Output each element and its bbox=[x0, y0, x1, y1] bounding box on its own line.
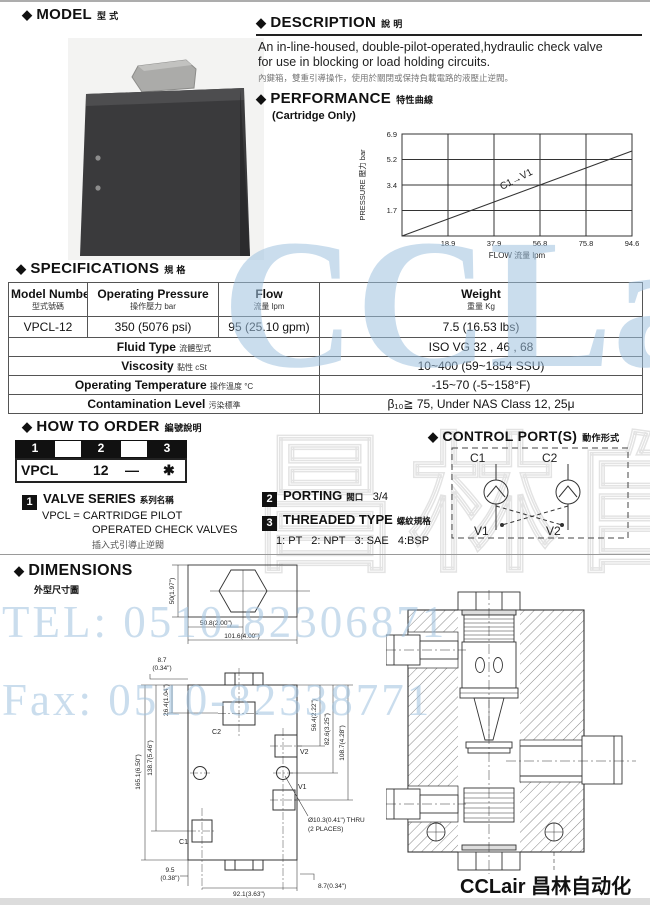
col-operating-pressure-cn: 操作壓力 bar bbox=[90, 301, 216, 312]
svg-text:94.6: 94.6 bbox=[625, 239, 640, 248]
how-to-order-header: ◆HOW TO ORDER編號說明 bbox=[22, 418, 202, 435]
port-c2-label: C2 bbox=[542, 451, 558, 465]
svg-text:8.7(0.34"): 8.7(0.34") bbox=[318, 883, 346, 890]
threaded-type-title: THREADED TYPE bbox=[283, 512, 393, 527]
porting-item: 2PORTING閥口 3/4 bbox=[262, 487, 388, 507]
svg-text:1.7: 1.7 bbox=[387, 206, 397, 215]
svg-text:6.9: 6.9 bbox=[387, 130, 397, 139]
spec-data-row: VPCL-12 350 (5076 psi) 95 (25.10 gpm) 7.… bbox=[9, 317, 643, 338]
col-weight: Weight bbox=[322, 287, 640, 301]
porting-value: 3/4 bbox=[373, 491, 388, 503]
front-view-port-labels: C2 V2 V1 C1 bbox=[179, 729, 309, 846]
port-v2-label: V2 bbox=[546, 524, 561, 538]
valve-series-title-cn: 系列名稱 bbox=[140, 495, 174, 505]
order-position-bar: 1 2 3 bbox=[15, 440, 187, 458]
diamond-icon: ◆ bbox=[256, 91, 266, 106]
cell-model: VPCL-12 bbox=[9, 317, 88, 338]
description-chinese: 內鍵箱，雙重引導操作，使用於關閉或保持負載電路的液壓止逆閥。 bbox=[258, 72, 513, 84]
value-operating-temperature: -15~70 (-5~158°F) bbox=[320, 376, 643, 395]
dimensions-header-label: DIMENSIONS bbox=[28, 562, 132, 579]
description-text: An in-line-housed, double-pilot-operated… bbox=[258, 40, 603, 70]
performance-header-cn: 特性曲線 bbox=[396, 95, 433, 105]
control-ports-header: ◆CONTROL PORT(S)動作形式 bbox=[428, 428, 619, 445]
how-to-order-cn: 編號說明 bbox=[165, 423, 202, 433]
description-header: ◆DESCRIPTION說 明 bbox=[256, 14, 403, 31]
svg-text:(0.34"): (0.34") bbox=[152, 665, 171, 672]
svg-text:37.9: 37.9 bbox=[487, 239, 502, 248]
svg-text:Ø10.3(0.41") THRU: Ø10.3(0.41") THRU bbox=[308, 817, 365, 824]
svg-text:9.5: 9.5 bbox=[165, 867, 174, 874]
dimensions-header-cn: 外型尺寸圖 bbox=[34, 583, 79, 596]
cell-weight: 7.5 (16.53 lbs) bbox=[320, 317, 643, 338]
dimensions-header: ◆DIMENSIONS bbox=[14, 562, 133, 580]
col-model-number-cn: 型式號碼 bbox=[11, 301, 85, 312]
porting-title: PORTING bbox=[283, 488, 342, 503]
product-photo bbox=[68, 38, 264, 260]
valve-series-line3-cn: 插入式引導止逆閥 bbox=[92, 538, 164, 551]
dimension-front-view: 8.7 (0.34") 165.1(6.50") 138.7(5.46") 26… bbox=[118, 648, 383, 905]
spec-header-row: Model Number型式號碼 Operating Pressure操作壓力 … bbox=[9, 283, 643, 317]
how-to-order-label: HOW TO ORDER bbox=[36, 418, 159, 435]
svg-text:138.7(5.46"): 138.7(5.46") bbox=[147, 740, 154, 776]
performance-header-label: PERFORMANCE bbox=[270, 90, 391, 107]
col-flow: Flow bbox=[221, 287, 317, 301]
svg-text:C1: C1 bbox=[179, 839, 188, 846]
spec-info-row: Operating Temperature 操作溫度 °C -15~70 (-5… bbox=[9, 376, 643, 395]
model-header: ◆MODEL型 式 bbox=[22, 6, 118, 23]
svg-text:18.9: 18.9 bbox=[441, 239, 456, 248]
dim-50: 50(1.97") bbox=[169, 578, 176, 605]
svg-text:92.1(3.63"): 92.1(3.63") bbox=[233, 891, 265, 898]
valve-series-line2: OPERATED CHECK VALVES bbox=[92, 524, 237, 536]
chart-x-ticks: 18.9 37.9 56.8 75.8 94.6 bbox=[441, 239, 640, 248]
port-v1-label: V1 bbox=[474, 524, 489, 538]
code-asterisk: ✱ bbox=[163, 462, 175, 479]
specifications-table: Model Number型式號碼 Operating Pressure操作壓力 … bbox=[8, 282, 643, 414]
section-divider bbox=[0, 554, 650, 555]
pilot-junction bbox=[500, 523, 504, 527]
porting-title-cn: 閥口 bbox=[346, 492, 363, 502]
dimension-section-view bbox=[386, 590, 642, 875]
diamond-icon: ◆ bbox=[22, 7, 32, 22]
dimension-top-view: 50(1.97") 50.8(2.00") 101.6(4.00") bbox=[150, 558, 350, 653]
position-2: 2 bbox=[81, 440, 121, 458]
spec-info-row: Fluid Type 流體型式 ISO VG 32 , 46 , 68 bbox=[9, 338, 643, 357]
datasheet-page: 昌林自动化 CCLair TEL: 0510-82306871 Fax: 051… bbox=[0, 0, 650, 905]
svg-text:56.4(2.22"): 56.4(2.22") bbox=[311, 699, 318, 731]
chart-x-axis-label: FLOW 流量 lpm bbox=[489, 250, 546, 260]
code-size: 12 bbox=[93, 462, 109, 478]
check-valve-symbols bbox=[484, 464, 580, 530]
label-fluid-type-cn: 流體型式 bbox=[179, 344, 211, 353]
label-contamination-level-cn: 污染標準 bbox=[209, 401, 241, 410]
description-header-label: DESCRIPTION bbox=[270, 14, 376, 31]
label-viscosity: Viscosity bbox=[121, 359, 173, 373]
performance-header: ◆PERFORMANCE特性曲線 bbox=[256, 90, 433, 107]
cell-pressure: 350 (5076 psi) bbox=[88, 317, 219, 338]
svg-text:8.7: 8.7 bbox=[157, 657, 166, 664]
cell-flow: 95 (25.10 gpm) bbox=[219, 317, 320, 338]
svg-text:82.6(3.25"): 82.6(3.25") bbox=[324, 713, 331, 745]
threaded-type-title-cn: 螺紋規格 bbox=[397, 516, 431, 526]
col-flow-cn: 流量 lpm bbox=[221, 301, 317, 312]
model-header-label: MODEL bbox=[36, 6, 92, 23]
performance-subtitle: (Cartridge Only) bbox=[272, 110, 356, 122]
diamond-icon: ◆ bbox=[428, 429, 438, 444]
col-weight-cn: 重量 Kg bbox=[322, 301, 640, 312]
diamond-icon: ◆ bbox=[14, 563, 24, 578]
dim-50-8: 50.8(2.00") bbox=[200, 620, 232, 627]
position-1: 1 bbox=[15, 440, 55, 458]
col-model-number: Model Number bbox=[11, 287, 85, 301]
valve-body-photo bbox=[80, 88, 250, 256]
label-viscosity-cn: 黏性 cSt bbox=[177, 363, 207, 372]
col-operating-pressure: Operating Pressure bbox=[90, 287, 216, 301]
chart-y-axis-label: PRESSURE 壓力 bar bbox=[357, 149, 367, 221]
port-c1-label: C1 bbox=[470, 451, 486, 465]
svg-text:56.8: 56.8 bbox=[533, 239, 548, 248]
item-3-badge: 3 bbox=[262, 516, 277, 531]
scan-top-edge bbox=[0, 0, 650, 2]
value-viscosity: 10~400 (59~1854 SSU) bbox=[320, 357, 643, 376]
valve-series-line1: VPCL = CARTRIDGE PILOT bbox=[42, 510, 182, 522]
position-3: 3 bbox=[147, 440, 187, 458]
svg-text:C2: C2 bbox=[212, 729, 221, 736]
svg-text:75.8: 75.8 bbox=[579, 239, 594, 248]
specifications-header-label: SPECIFICATIONS bbox=[30, 260, 159, 277]
diamond-icon: ◆ bbox=[22, 419, 32, 434]
svg-text:3.4: 3.4 bbox=[387, 181, 397, 190]
value-fluid-type: ISO VG 32 , 46 , 68 bbox=[320, 338, 643, 357]
description-underline bbox=[256, 34, 642, 36]
spec-info-row: Contamination Level 污染標準 β₁₀≧ 75, Under … bbox=[9, 395, 643, 414]
position-gap bbox=[121, 440, 147, 458]
label-operating-temperature: Operating Temperature bbox=[75, 378, 207, 392]
front-view-outline bbox=[188, 673, 297, 870]
description-header-cn: 說 明 bbox=[381, 19, 402, 29]
svg-text:(0.38"): (0.38") bbox=[160, 875, 179, 882]
front-view-dim-lines bbox=[141, 674, 353, 891]
chart-y-ticks: 6.9 5.2 3.4 1.7 bbox=[387, 130, 397, 215]
valve-series-title: VALVE SERIES bbox=[43, 491, 136, 506]
threaded-type-item: 3THREADED TYPE螺紋規格 bbox=[262, 511, 431, 531]
footer-brand: CCLair 昌林自动化 bbox=[460, 870, 631, 899]
valve-series-item: 1VALVE SERIES系列名稱 bbox=[22, 490, 174, 510]
code-series: VPCL bbox=[21, 462, 58, 478]
specifications-header-cn: 規 格 bbox=[164, 265, 185, 275]
threaded-type-options: 1: PT 2: NPT 3: SAE 4:BSP bbox=[276, 535, 429, 547]
control-ports-diagram: C1 C2 V1 V2 bbox=[450, 446, 632, 542]
svg-text:165.1(6.50"): 165.1(6.50") bbox=[135, 754, 142, 790]
svg-text:5.2: 5.2 bbox=[387, 155, 397, 164]
description-line1: An in-line-housed, double-pilot-operated… bbox=[258, 40, 603, 55]
svg-text:V2: V2 bbox=[300, 749, 309, 756]
svg-text:108.7(4.28"): 108.7(4.28") bbox=[339, 725, 346, 761]
chart-curve-c1-v1 bbox=[402, 151, 632, 236]
diamond-icon: ◆ bbox=[16, 261, 26, 276]
performance-chart: C1→V1 6.9 5.2 3.4 1.7 18.9 37.9 56.8 75.… bbox=[352, 124, 650, 264]
diamond-icon: ◆ bbox=[256, 15, 266, 30]
label-contamination-level: Contamination Level bbox=[87, 397, 205, 411]
item-2-badge: 2 bbox=[262, 492, 277, 507]
item-1-badge: 1 bbox=[22, 495, 37, 510]
label-fluid-type: Fluid Type bbox=[117, 340, 176, 354]
position-gap bbox=[55, 440, 81, 458]
model-header-cn: 型 式 bbox=[97, 11, 118, 21]
control-ports-label: CONTROL PORT(S) bbox=[442, 428, 577, 444]
scan-bottom-edge bbox=[0, 898, 650, 905]
svg-text:V1: V1 bbox=[298, 784, 307, 791]
spec-info-row: Viscosity 黏性 cSt 10~400 (59~1854 SSU) bbox=[9, 357, 643, 376]
svg-text:26.4(1.04"): 26.4(1.04") bbox=[163, 684, 170, 716]
order-code-row: VPCL 12 — ✱ bbox=[15, 458, 187, 483]
label-operating-temperature-cn: 操作溫度 °C bbox=[210, 382, 253, 391]
front-view-dim-labels: 8.7 (0.34") 165.1(6.50") 138.7(5.46") 26… bbox=[135, 657, 365, 898]
code-dash: — bbox=[125, 462, 139, 478]
svg-text:(2 PLACES): (2 PLACES) bbox=[308, 826, 343, 833]
dim-101-6: 101.6(4.00") bbox=[224, 633, 260, 640]
order-code-box: 1 2 3 VPCL 12 — ✱ bbox=[15, 440, 187, 483]
specifications-header: ◆SPECIFICATIONS規 格 bbox=[16, 260, 186, 277]
value-contamination-level: β₁₀≧ 75, Under NAS Class 12, 25μ bbox=[320, 395, 643, 414]
description-line2: for use in blocking or load holding circ… bbox=[258, 55, 603, 70]
control-ports-cn: 動作形式 bbox=[582, 433, 619, 443]
